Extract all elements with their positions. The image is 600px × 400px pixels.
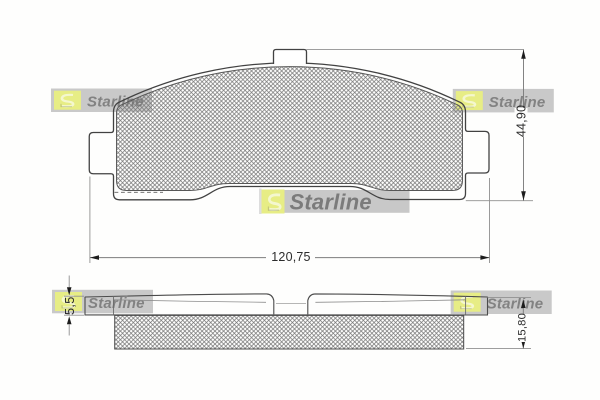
svg-text:120,75: 120,75 xyxy=(271,250,310,264)
svg-text:Starline: Starline xyxy=(290,190,372,215)
svg-text:5,5: 5,5 xyxy=(62,296,77,315)
svg-text:44,90: 44,90 xyxy=(515,105,529,137)
svg-text:15,80: 15,80 xyxy=(516,313,528,342)
